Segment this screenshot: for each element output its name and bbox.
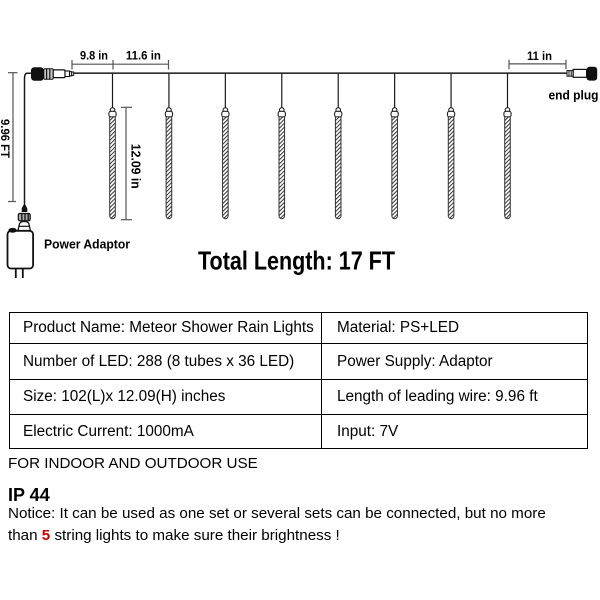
svg-text:9.8 in: 9.8 in [80, 51, 108, 63]
svg-text:11 in: 11 in [527, 51, 552, 63]
svg-text:Power Adaptor: Power Adaptor [44, 237, 130, 252]
svg-text:12.09 in: 12.09 in [129, 144, 143, 189]
svg-text:11.6 in: 11.6 in [126, 51, 161, 63]
svg-text:Total Length: 17 FT: Total Length: 17 FT [198, 245, 395, 275]
svg-text:9.96 FT: 9.96 FT [0, 119, 12, 159]
svg-text:end plug: end plug [549, 88, 599, 103]
